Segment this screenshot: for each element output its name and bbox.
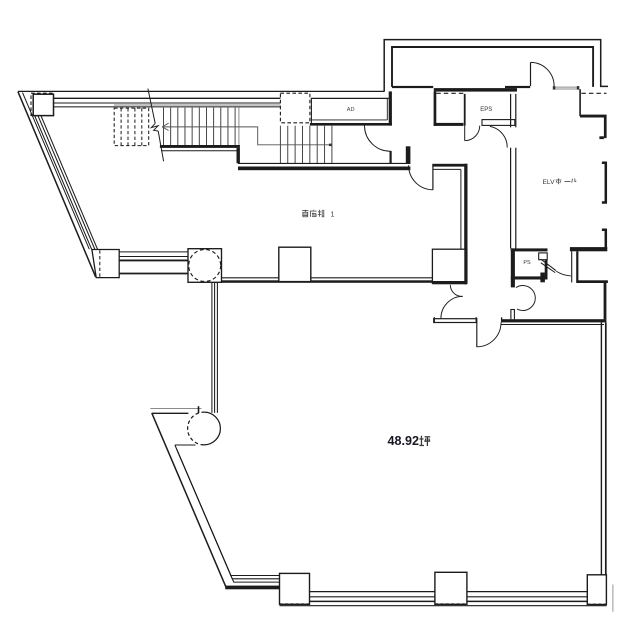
svg-text:48.92: 48.92 — [388, 434, 420, 448]
svg-text:PS: PS — [523, 260, 531, 266]
svg-text:ELV: ELV — [543, 179, 556, 186]
svg-text:AD: AD — [347, 107, 355, 113]
svg-text:1: 1 — [331, 209, 335, 218]
svg-text:EPS: EPS — [480, 107, 492, 113]
